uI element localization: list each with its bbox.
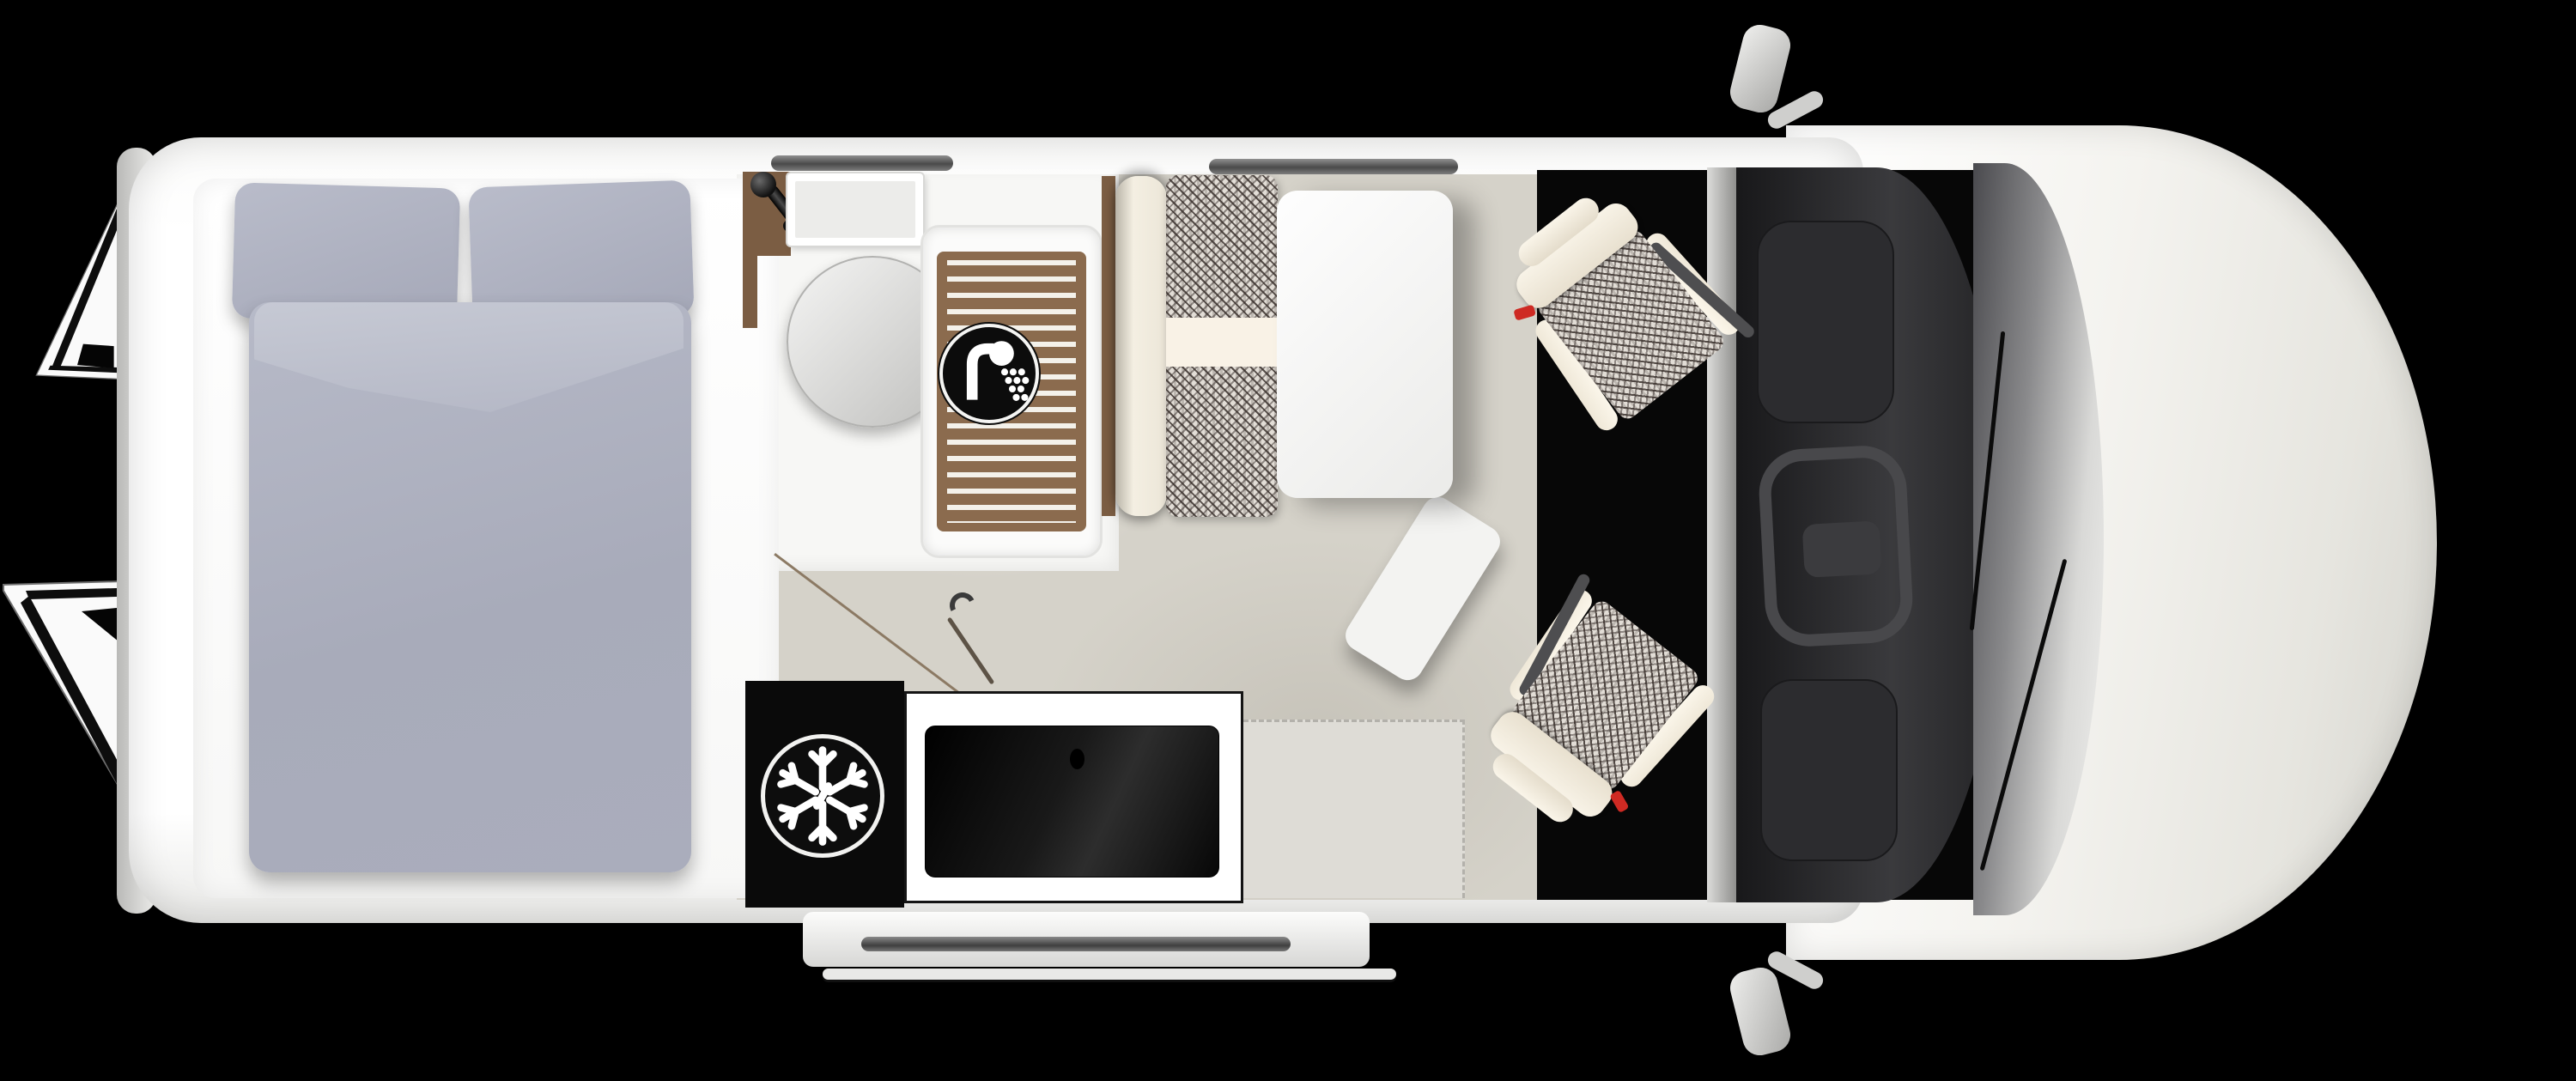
shower-icon — [939, 324, 1039, 423]
bench-backrest — [1115, 176, 1167, 516]
steering-wheel — [1757, 444, 1915, 649]
window-rail-right — [1209, 159, 1458, 174]
entry-step-mat — [1243, 720, 1465, 898]
side-mirror-top — [1727, 21, 1795, 117]
faucet-base — [750, 172, 776, 197]
bench-cushion — [1166, 175, 1278, 517]
dashboard-lower-console — [1760, 679, 1898, 861]
sliding-door-rail — [861, 937, 1291, 951]
duvet-fold — [254, 302, 683, 412]
bathroom-wood-strip — [743, 256, 757, 328]
sink-basin — [795, 181, 915, 238]
dashboard — [1736, 167, 2004, 902]
duvet — [249, 302, 691, 872]
instrument-cluster — [1757, 221, 1894, 423]
floorplan-stage — [0, 0, 2576, 1081]
window-rail-left — [771, 155, 953, 171]
snowflake-icon — [761, 734, 884, 858]
cooktop-knob — [1070, 749, 1084, 769]
side-mirror-bottom — [1727, 964, 1795, 1060]
cab-bulkhead-band — [1707, 167, 1736, 902]
dinette-table — [1277, 191, 1453, 498]
steering-hub — [1802, 520, 1882, 578]
dinette-wood-panel — [1102, 176, 1115, 516]
sink — [787, 173, 923, 246]
running-board — [823, 969, 1396, 980]
cooktop-glass — [925, 726, 1219, 878]
seat-belt-buckle — [1513, 305, 1536, 321]
bench-divider — [1166, 318, 1278, 367]
